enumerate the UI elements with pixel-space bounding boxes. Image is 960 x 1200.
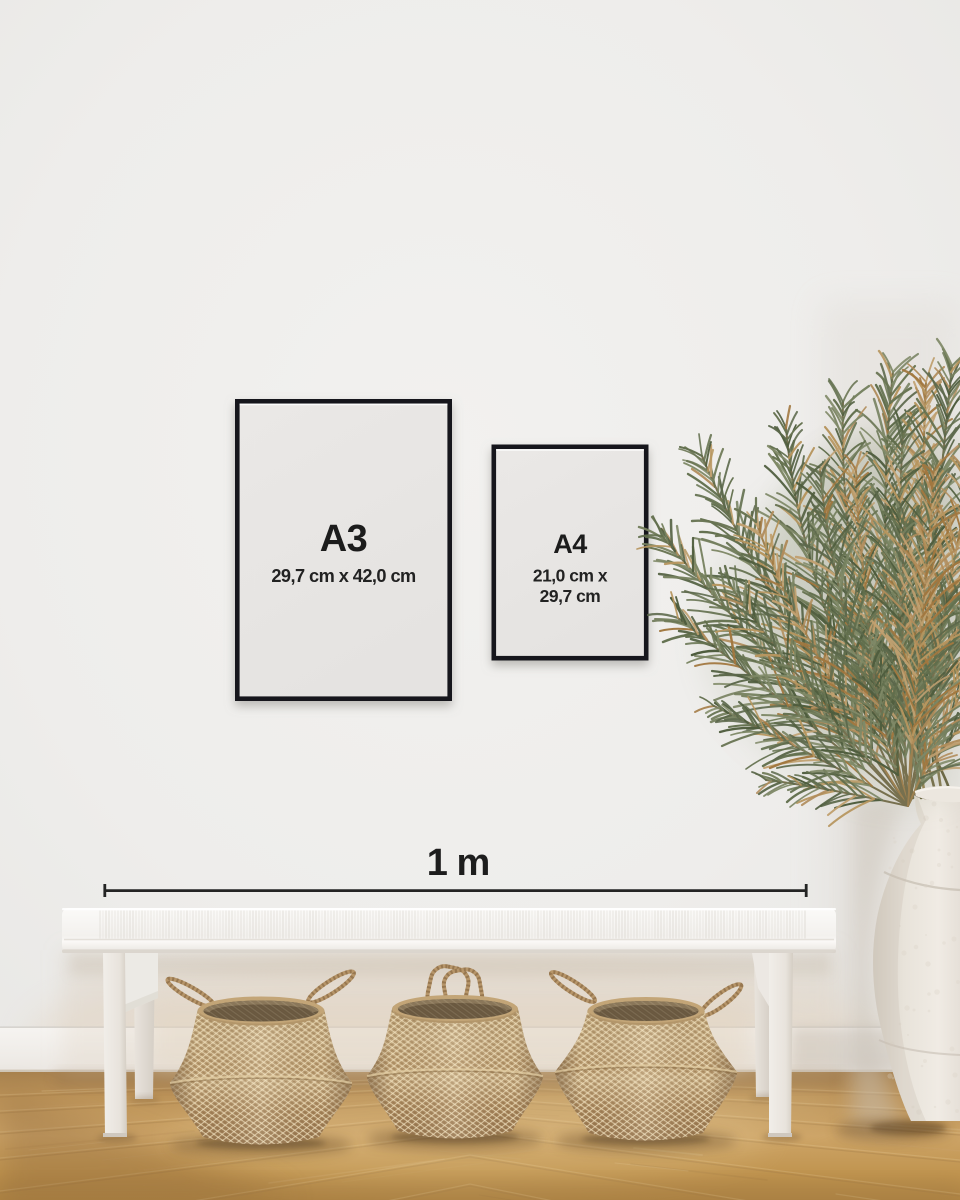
svg-text:1 m: 1 m — [427, 842, 489, 884]
svg-text:A3: A3 — [320, 518, 368, 560]
svg-text:29,7 cm: 29,7 cm — [540, 586, 601, 606]
svg-text:29,7 cm x 42,0 cm: 29,7 cm x 42,0 cm — [271, 566, 416, 586]
svg-text:A4: A4 — [553, 529, 587, 559]
svg-text:21,0 cm x: 21,0 cm x — [533, 566, 608, 586]
